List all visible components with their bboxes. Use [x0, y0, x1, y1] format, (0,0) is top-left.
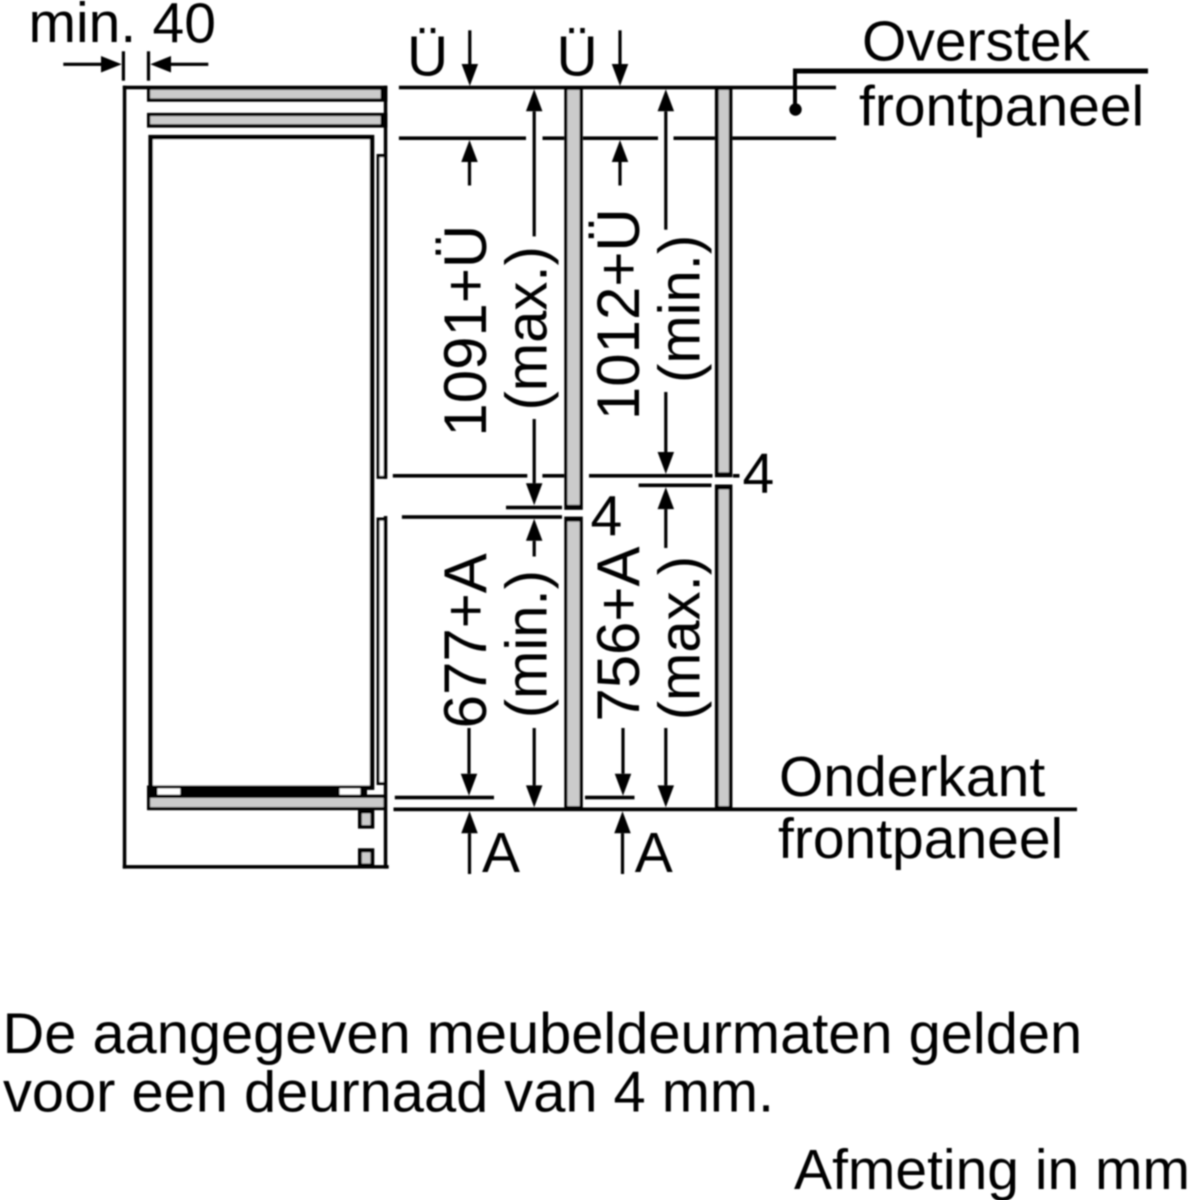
svg-text:4: 4 [591, 485, 623, 549]
svg-text:min.: min. [29, 0, 137, 55]
svg-text:voor een deurnaad van 4 mm.: voor een deurnaad van 4 mm. [3, 1061, 774, 1125]
svg-text:A: A [482, 821, 520, 885]
svg-text:Ü: Ü [557, 25, 598, 89]
svg-text:1012+Ü: 1012+Ü [585, 208, 652, 420]
svg-text:De aangegeven meubeldeurmaten: De aangegeven meubeldeurmaten gelden [3, 1002, 1083, 1066]
svg-text:(min.): (min.) [648, 235, 713, 383]
svg-text:Onderkant: Onderkant [779, 745, 1045, 809]
svg-text:(max.): (max.) [495, 246, 560, 410]
svg-text:Ü: Ü [407, 25, 448, 89]
svg-text:(min.): (min.) [495, 570, 560, 718]
svg-text:A: A [635, 821, 673, 885]
svg-text:Overstek: Overstek [862, 10, 1091, 74]
svg-text:frontpaneel: frontpaneel [778, 807, 1063, 871]
svg-text:frontpaneel: frontpaneel [859, 75, 1144, 139]
svg-text:4: 4 [743, 442, 775, 506]
svg-text:Afmeting in mm: Afmeting in mm [794, 1138, 1190, 1200]
svg-text:677+A: 677+A [432, 553, 499, 728]
svg-text:1091+Ü: 1091+Ü [432, 225, 499, 437]
svg-text:756+A: 756+A [585, 547, 652, 722]
svg-text:40: 40 [153, 0, 216, 56]
svg-text:(max.): (max.) [648, 556, 713, 720]
